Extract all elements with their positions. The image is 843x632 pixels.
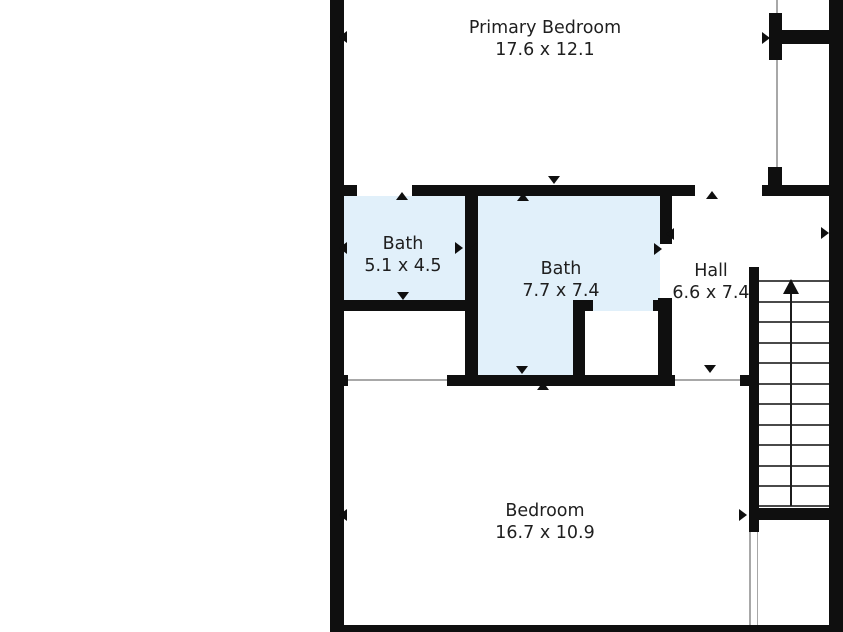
door-marker-bedroom-left-wall-icon [339, 509, 347, 521]
room-label-primary-bedroom: Primary Bedroom 17.6 x 12.1 [469, 17, 621, 61]
stair-tread-7 [759, 424, 829, 426]
middle-bottom-wall-seg1 [330, 375, 348, 386]
door-marker-bath-1-bottom-icon [397, 292, 409, 300]
door-marker-stair-landing-icon [739, 509, 747, 521]
door-marker-bath-divider-right-icon [470, 242, 478, 254]
room-name-primary-bedroom: Primary Bedroom [469, 17, 621, 39]
door-marker-primary-left-wall-icon [339, 31, 347, 43]
room-dimensions-bath-2: 7.7 x 7.4 [522, 280, 599, 302]
bath-2-closet-left-wall [573, 300, 585, 385]
middle-bottom-wall-seg2 [447, 375, 675, 386]
door-marker-closet-entry-icon [762, 32, 770, 44]
door-marker-bath-1-left-wall-icon [339, 242, 347, 254]
room-dimensions-hall: 6.6 x 7.4 [672, 282, 749, 304]
room-label-bath-1: Bath 5.1 x 4.5 [364, 233, 441, 277]
bath-1-bottom-wall [330, 300, 478, 311]
door-marker-bath-2-entry-outside-icon [548, 176, 560, 184]
door-marker-bedroom-top-icon [537, 382, 549, 390]
room-label-bath-2: Bath 7.7 x 7.4 [522, 258, 599, 302]
outer-wall-bottom [330, 625, 843, 632]
outer-wall-left [330, 0, 344, 632]
door-marker-bath-2-entry-inside-icon [517, 193, 529, 201]
room-name-bath-1: Bath [364, 233, 441, 255]
stair-tread-3 [759, 342, 829, 344]
middle-top-wall-seg2 [412, 185, 695, 196]
stair-tread-2 [759, 321, 829, 323]
room-name-bedroom: Bedroom [495, 500, 594, 522]
stair-tread-9 [759, 465, 829, 467]
stair-bottom-wall [749, 508, 843, 520]
middle-top-wall-seg1 [330, 185, 357, 196]
room-label-bedroom: Bedroom 16.7 x 10.9 [495, 500, 594, 544]
room-dimensions-bath-1: 5.1 x 4.5 [364, 255, 441, 277]
stair-tread-11 [759, 505, 829, 507]
door-marker-hall-bottom-opening-icon [704, 365, 716, 373]
stair-tread-4 [759, 362, 829, 364]
door-marker-hall-top-opening-icon [706, 191, 718, 199]
room-label-hall: Hall 6.6 x 7.4 [672, 260, 749, 304]
stair-tread-10 [759, 485, 829, 487]
closet-wall-horizontal [775, 30, 843, 44]
closet-bedroom-opening-line [348, 379, 447, 381]
bath-2-closet-floor [585, 311, 658, 375]
stair-direction-line [790, 291, 792, 506]
hall-bedroom-opening-line [675, 379, 740, 381]
room-dimensions-bedroom: 16.7 x 10.9 [495, 522, 594, 544]
floor-plan: Primary Bedroom 17.6 x 12.1 Bath 5.1 x 4… [0, 0, 843, 632]
stair-tread-5 [759, 383, 829, 385]
stair-landing-opening-line-left [749, 532, 751, 625]
door-marker-bath-2-bottom-icon [516, 366, 528, 374]
stairs-up-arrow-icon [783, 279, 799, 294]
bath-divider-wall [465, 196, 478, 385]
door-marker-bath-2-hall-lower-icon [654, 243, 662, 255]
outer-wall-right [829, 0, 843, 632]
room-name-hall: Hall [672, 260, 749, 282]
stair-landing-opening-line-right [757, 532, 759, 625]
stair-tread-1 [759, 301, 829, 303]
room-name-bath-2: Bath [522, 258, 599, 280]
door-marker-bath-divider-left-icon [455, 242, 463, 254]
stair-tread-6 [759, 403, 829, 405]
bath-2-closet-right-wall [658, 298, 672, 385]
room-dimensions-primary-bedroom: 17.6 x 12.1 [469, 39, 621, 61]
middle-top-wall-seg3 [762, 185, 843, 196]
door-marker-bath-1-entry-icon [396, 192, 408, 200]
door-marker-bath-2-hall-upper-icon [666, 228, 674, 240]
stair-left-wall [749, 267, 759, 532]
stair-tread-8 [759, 444, 829, 446]
door-marker-hall-right-wall-icon [821, 227, 829, 239]
